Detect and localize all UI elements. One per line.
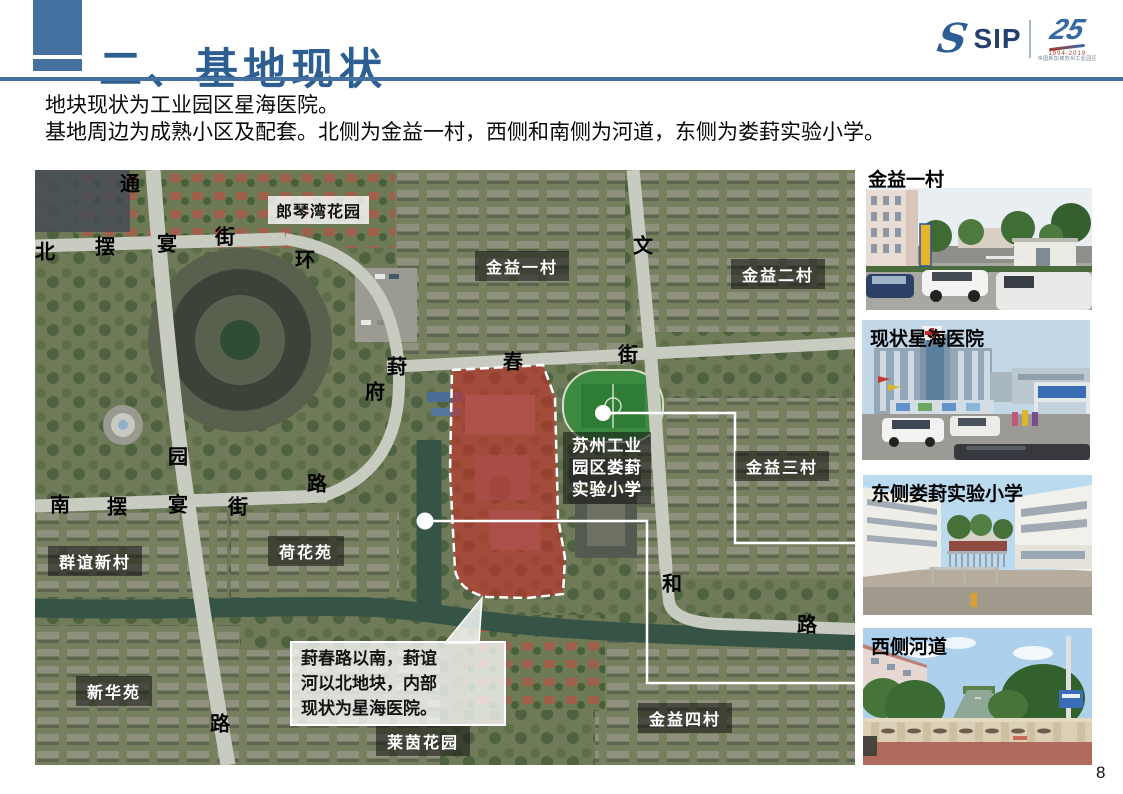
site-boundary-polygon (450, 365, 565, 598)
map-label-jinyi-sicun: 金益四村 (638, 703, 732, 733)
sip-swirl-icon: S (934, 21, 969, 57)
sip-logo-text: SIP (973, 23, 1021, 55)
slide: 二、基地现状 S SIP 25 1994-2019 中国新加坡苏州工业园区 地块… (0, 0, 1123, 794)
intro-line-2: 基地周边为成熟小区及配套。北侧为金益一村，西侧和南侧为河道，东侧为娄葑实验小学。 (45, 119, 885, 146)
callout-line3: 现状为星海医院。 (301, 696, 495, 721)
photo-sidebar: 金益一村 (862, 165, 1093, 770)
map-label-xinhua: 新华苑 (76, 676, 152, 706)
road-char-lu1: 路 (307, 468, 327, 497)
site-map: 郎琴湾花园 金益一村 金益二村 金益三村 金益四村 荷花苑 群谊新村 新华苑 莱… (35, 170, 855, 765)
road-char-lu3: 路 (797, 609, 817, 638)
road-char-tong: 通 (120, 170, 140, 197)
intro-text: 地块现状为工业园区星海医院。 基地周边为成熟小区及配套。北侧为金益一村，西侧和南… (45, 92, 885, 146)
school-label-line3: 实验小学 (572, 479, 642, 501)
photo-jinyi-yicun (866, 188, 1092, 310)
map-label-langqinwan: 郎琴湾花园 (268, 196, 369, 224)
anniversary-number: 25 (1047, 16, 1088, 45)
marker-dot-river (417, 513, 434, 530)
road-char-feng: 葑 (387, 351, 407, 380)
road-char-he: 和 (662, 568, 682, 597)
road-char-yuan: 园 (168, 441, 188, 470)
page-number: 8 (1096, 763, 1105, 783)
road-char-wen: 文 (633, 230, 653, 259)
road-char-bai: 摆 (95, 231, 115, 260)
map-label-school: 苏州工业 园区娄葑 实验小学 (563, 432, 651, 504)
callout-line1: 葑春路以南，葑谊 (301, 646, 495, 671)
school-label-line1: 苏州工业 (572, 435, 642, 457)
title-decoration-bar (33, 59, 82, 71)
title-decoration-square (33, 0, 82, 55)
map-label-hehuayuan: 荷花苑 (268, 536, 344, 566)
anniversary-logo: 25 1994-2019 中国新加坡苏州工业园区 (1038, 16, 1097, 62)
map-label-jinyi-yicun: 金益一村 (475, 251, 569, 281)
photo-card-school: 东侧娄葑实验小学 (863, 475, 1092, 615)
map-label-qunyi: 群谊新村 (48, 546, 142, 576)
marker-dot-school (595, 405, 611, 421)
sip-logo: S SIP 25 1994-2019 中国新加坡苏州工业园区 (938, 16, 1097, 62)
map-label-jinyi-ercun: 金益二村 (731, 259, 825, 289)
road-char-jie2: 街 (228, 491, 248, 520)
road-char-yan: 宴 (157, 228, 177, 257)
road-char-chun: 春 (503, 346, 523, 375)
school-label-line2: 园区娄葑 (572, 457, 642, 479)
map-label-jinyi-sancun: 金益三村 (735, 451, 829, 481)
photo-label-river: 西侧河道 (871, 632, 947, 659)
intro-line-1: 地块现状为工业园区星海医院。 (45, 92, 885, 119)
road-char-bei: 北 (35, 236, 55, 265)
site-callout: 葑春路以南，葑谊 河以北地块，内部 现状为星海医院。 (290, 641, 506, 726)
photo-label-hospital: 现状星海医院 (870, 324, 984, 351)
road-char-lu2: 路 (210, 708, 230, 737)
map-label-laiyin: 莱茵花园 (376, 726, 470, 756)
anniversary-org: 中国新加坡苏州工业园区 (1038, 57, 1097, 62)
road-char-yan2: 宴 (168, 489, 188, 518)
photo-card-jinyi-yicun: 金益一村 (862, 165, 1093, 310)
road-char-bai2: 摆 (107, 491, 127, 520)
photo-card-hospital: 现状星海医院 (862, 320, 1090, 460)
logo-divider (1029, 20, 1031, 58)
photo-jinyi-yicun-image (866, 188, 1092, 310)
road-char-nan: 南 (50, 489, 70, 518)
road-char-fu: 府 (365, 376, 385, 405)
callout-line2: 河以北地块，内部 (301, 671, 495, 696)
photo-card-river: 西侧河道 (863, 628, 1092, 765)
road-char-jie3: 街 (618, 339, 638, 368)
road-char-jie: 街 (215, 221, 235, 250)
road-char-huan: 环 (295, 244, 315, 273)
header-rule (0, 77, 1123, 81)
photo-label-school: 东侧娄葑实验小学 (871, 479, 1023, 506)
page-title: 二、基地现状 (99, 35, 387, 97)
